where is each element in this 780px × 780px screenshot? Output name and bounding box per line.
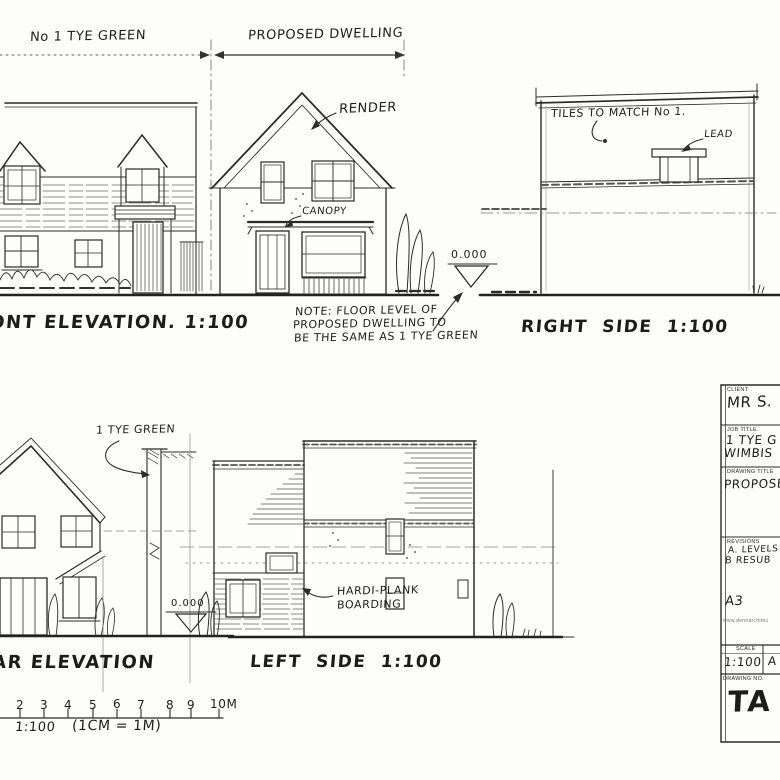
dimension-label-proposed-dwelling: PROPOSED DWELLING: [248, 27, 404, 43]
scale-number-4: 4: [64, 699, 72, 711]
no1-house-front: [0, 103, 203, 294]
tye-green-annotation: 1 TYE GREEN: [96, 423, 176, 435]
dimension-label-no1-tye-green: No 1 TYE GREEN: [30, 29, 147, 44]
datum-level-rear: 0.000: [171, 599, 205, 609]
right-side-caption: RIGHT SIDE 1:100: [520, 319, 729, 336]
left-side-caption: LEFT SIDE 1:100: [249, 654, 443, 671]
drawing-no-header: DRAWING NO.: [723, 677, 764, 683]
scale-number-2: 2: [16, 699, 24, 711]
canopy-annotation: CANOPY: [302, 207, 348, 217]
scale-number-6: 6: [113, 698, 121, 710]
drawing-title-value: PROPOSE: [724, 477, 780, 490]
datum-level-front: 0.000: [451, 249, 488, 260]
job-title-line1: 1 TYE G: [725, 434, 777, 446]
paper-size: A3: [724, 595, 744, 608]
scale-second-value: A: [767, 655, 777, 667]
drawing-no-value: TA 6: [727, 686, 780, 716]
client-value: MR S.: [727, 394, 773, 411]
scale-number-9: 9: [187, 699, 195, 711]
hardiplank-annotation-line1: HARDI-PLANK: [337, 584, 419, 596]
scale-number-5: 5: [89, 699, 97, 711]
scale-bar-equivalence: (1CM = 1M): [72, 719, 162, 733]
scale-number-7: 7: [137, 699, 145, 711]
architectural-drawing-sheet: No 1 TYE GREEN PROPOSED DWELLING RENDER …: [0, 0, 780, 780]
front-elevation-caption: FRONT ELEVATION. 1:100: [0, 314, 250, 332]
lead-annotation: LEAD: [704, 130, 734, 140]
scale-number-10m: 10M: [210, 698, 237, 710]
tiles-annotation: TILES TO MATCH No 1.: [551, 106, 687, 119]
floor-level-note-line2: PROPOSED DWELLING TO: [293, 317, 447, 331]
floor-level-note-line3: BE THE SAME AS 1 TYE GREEN: [294, 329, 479, 343]
architect-website: www.dennarchitec: [723, 619, 768, 624]
scale-value: 1:100: [723, 656, 762, 668]
rear-elevation-caption: REAR ELEVATION: [0, 654, 156, 672]
scale-number-8: 8: [166, 699, 174, 711]
scale-number-3: 3: [40, 699, 48, 711]
scale-header: SCALE: [736, 647, 756, 653]
drawing-title-header: DRAWING TITLE: [727, 470, 774, 476]
revision-b: B RESUB: [725, 556, 772, 566]
render-annotation: RENDER: [339, 101, 397, 116]
hardiplank-annotation-line2: BOARDING: [337, 598, 402, 610]
job-title-line2: WIMBIS: [723, 447, 773, 459]
proposed-dwelling-front: [209, 93, 436, 294]
scale-bar-ratio: 1:100: [14, 721, 56, 734]
